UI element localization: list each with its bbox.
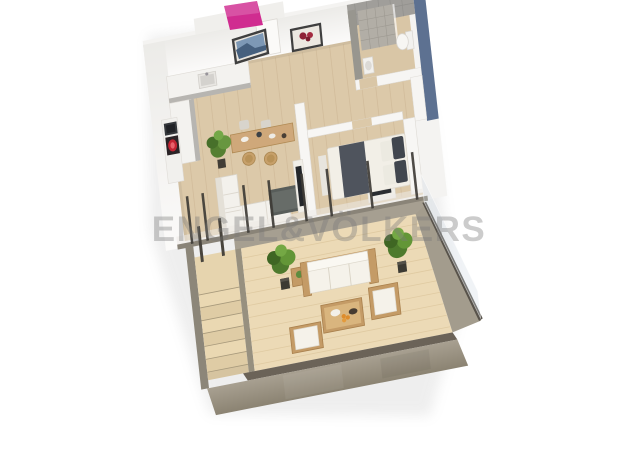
floorplan-render: ENGEL&VÖLKERS xyxy=(0,0,640,453)
washbasin xyxy=(363,57,374,75)
wall-art-still-life xyxy=(291,24,322,51)
floorplan-canvas: ENGEL&VÖLKERS xyxy=(0,0,640,453)
dining-chair xyxy=(239,119,250,130)
dark-pillow xyxy=(394,159,408,183)
white-pillow xyxy=(383,164,397,186)
oven-red-display xyxy=(165,135,180,155)
outdoor-armchair xyxy=(368,282,401,319)
entrance-doormat xyxy=(224,1,263,30)
watermark-text: ENGEL&VÖLKERS xyxy=(152,210,487,249)
white-pillow xyxy=(380,140,394,162)
outdoor-ottoman xyxy=(290,322,324,354)
dark-pillow xyxy=(391,136,405,160)
